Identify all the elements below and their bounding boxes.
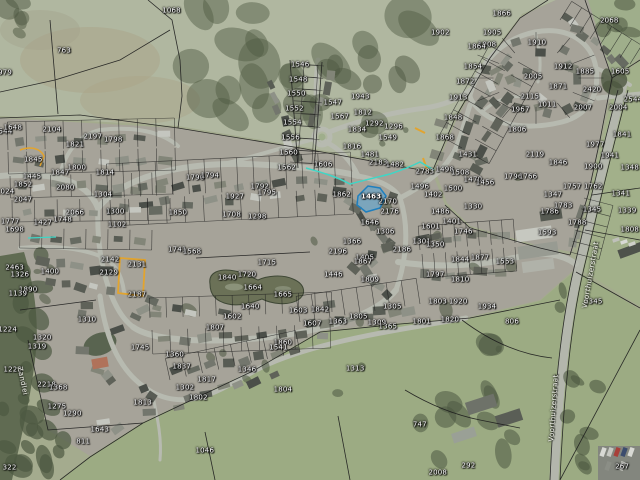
map-viewport[interactable]: 1068763979186620681313104674729281132226…: [0, 0, 640, 480]
aerial-map-canvas[interactable]: [0, 0, 640, 480]
